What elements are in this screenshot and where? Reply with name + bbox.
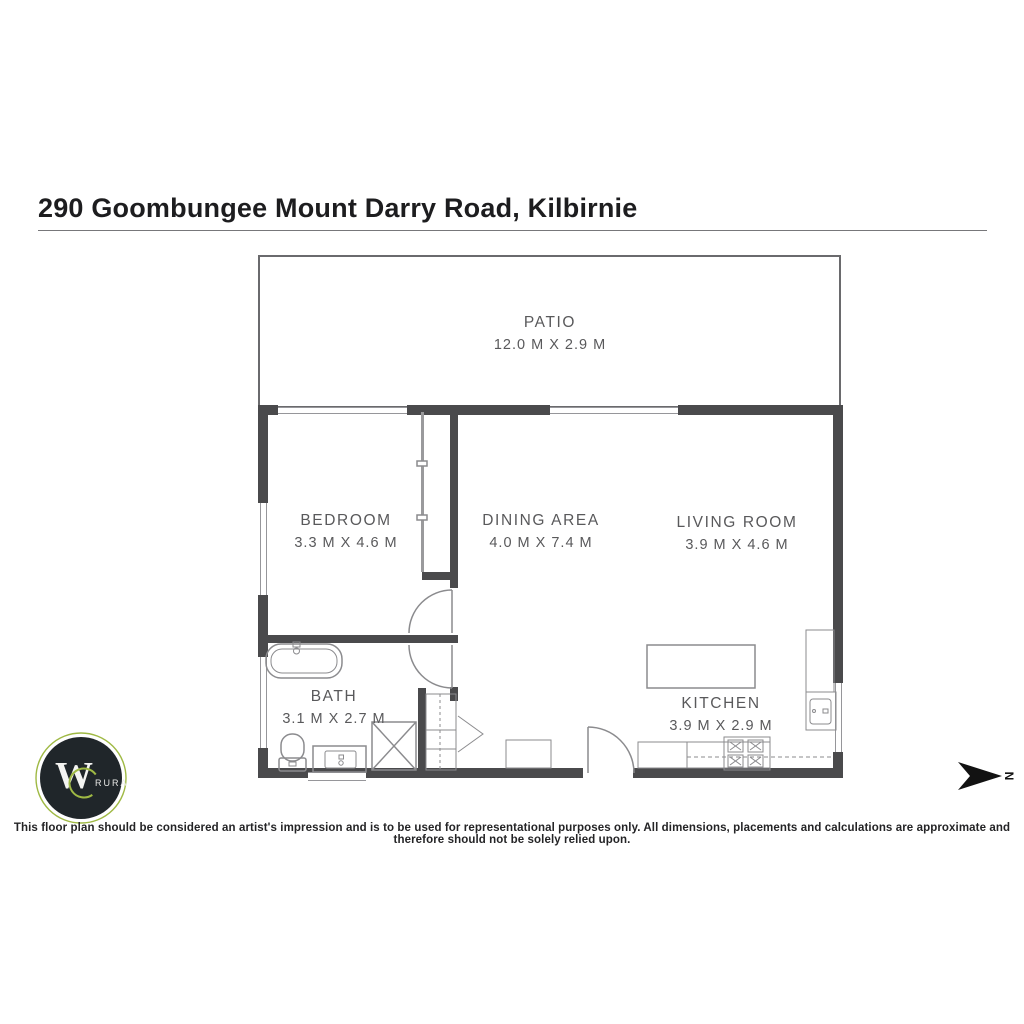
agency-logo: W RURAL (34, 731, 128, 825)
wall (258, 405, 268, 503)
north-label: N (1002, 772, 1016, 781)
wall (258, 635, 458, 643)
room-label-living: LIVING ROOM 3.9 M X 4.6 M (677, 514, 798, 553)
room-label-bath: BATH 3.1 M X 2.7 M (282, 688, 385, 727)
room-label-kitchen: KITCHEN 3.9 M X 2.9 M (669, 695, 772, 734)
room-label-dining: DINING AREA 4.0 M X 7.4 M (482, 512, 600, 551)
wall (422, 572, 458, 580)
wall (450, 405, 458, 588)
wall (407, 405, 550, 415)
window (835, 683, 842, 752)
kitchen-sink-unit (806, 630, 836, 730)
window (278, 407, 407, 414)
cabinet (506, 740, 551, 768)
exterior-door (588, 727, 634, 773)
bath-door (409, 645, 452, 688)
cooktop-burners (728, 740, 763, 767)
disclaimer-text: This floor plan should be considered an … (0, 822, 1024, 846)
wall (450, 687, 458, 701)
shower (372, 722, 416, 770)
bathtub (266, 642, 342, 678)
wall (633, 768, 843, 778)
north-arrow-icon: N (950, 754, 1022, 802)
wall (833, 405, 843, 683)
window (550, 407, 678, 414)
wall (258, 595, 268, 657)
logo-text: RURAL (95, 778, 128, 788)
window (260, 503, 267, 595)
toilet (279, 734, 306, 771)
window (260, 657, 267, 748)
title-divider (38, 230, 987, 231)
wall (678, 405, 843, 415)
wall (418, 688, 426, 772)
room-label-bedroom: BEDROOM 3.3 M X 4.6 M (294, 512, 397, 551)
kitchen-bench (638, 737, 833, 770)
bath-window (308, 772, 366, 781)
room-label-patio: PATIO 12.0 M X 2.9 M (494, 314, 606, 353)
page-title: 290 Goombungee Mount Darry Road, Kilbirn… (38, 193, 637, 224)
floor-plan-page: 290 Goombungee Mount Darry Road, Kilbirn… (0, 0, 1024, 1024)
linen-closet (426, 694, 483, 770)
kitchen-island (647, 645, 755, 688)
compass: N (950, 754, 1022, 802)
logo-letter: W (55, 755, 93, 797)
wardrobe-slider (421, 412, 424, 572)
bedroom-door (409, 590, 452, 633)
logo-icon: W RURAL (34, 731, 128, 825)
